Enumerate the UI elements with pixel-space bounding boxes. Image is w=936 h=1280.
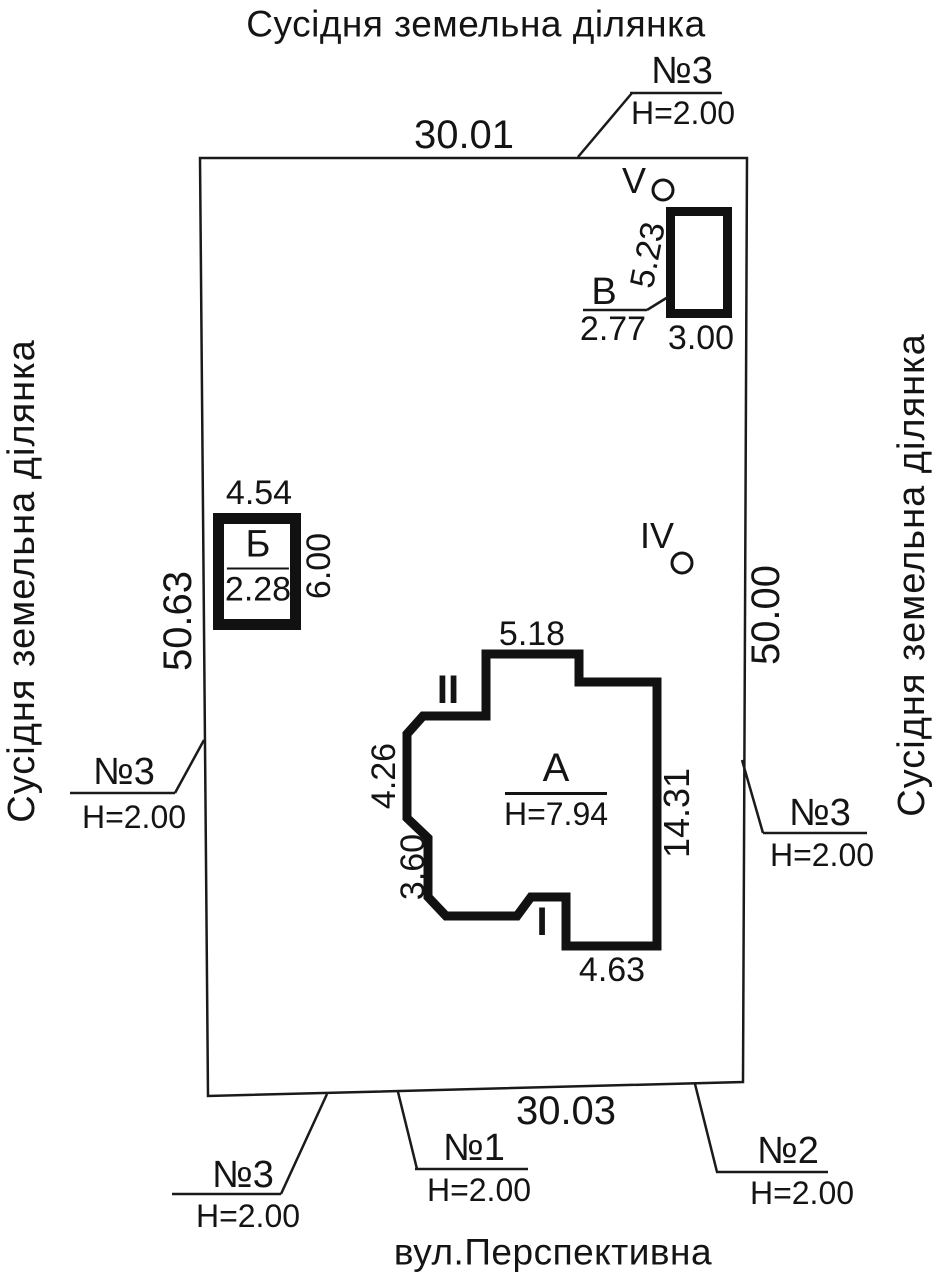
fence-no2-leader (695, 1084, 717, 1172)
fence-no2-height: H=2.00 (750, 1177, 854, 1209)
title-top: Сусідня земельна ділянка (246, 6, 705, 43)
fence-no1-height: H=2.00 (427, 1174, 531, 1206)
plot-dim-left: 50.63 (158, 571, 198, 671)
building-b-value: 2.28 (225, 570, 291, 607)
building-a-height: H=7.94 (504, 795, 608, 830)
fence-right-label: №3 (789, 794, 851, 832)
plan-drawing (0, 0, 936, 1280)
building-b-dim-width: 4.54 (226, 476, 292, 510)
fence-top-height: H=2.00 (631, 97, 735, 129)
building-a-label-group: А H=7.94 (504, 748, 608, 830)
title-street: вул.Перспективна (394, 1234, 712, 1271)
fence-top-leader (578, 93, 632, 157)
building-a-mark-ii: II (437, 670, 459, 710)
plot-dim-top: 30.01 (414, 115, 514, 155)
fence-no1-leader (398, 1092, 417, 1169)
building-a-dim-right: 14.31 (659, 768, 695, 858)
fence-bottom-left-height: H=2.00 (196, 1200, 300, 1232)
point-v-label: V (622, 163, 646, 199)
fence-no1-label: №1 (443, 1129, 505, 1167)
building-v-leader (647, 297, 668, 310)
plot-dim-bottom: 30.03 (516, 1091, 616, 1131)
building-v-label: В (591, 273, 616, 311)
building-v-outline (671, 212, 728, 314)
building-a-dim-bottom: 4.63 (579, 953, 645, 987)
plot-dim-right: 50.00 (746, 565, 786, 665)
fence-top-label: №3 (651, 52, 713, 90)
fence-left-leader (175, 740, 204, 793)
building-v-dim-width: 3.00 (668, 321, 734, 355)
fence-bottom-left-leader (281, 1094, 327, 1194)
building-a-mark-i: I (536, 902, 547, 942)
site-plan: Сусідня земельна ділянка Сусідня земельн… (0, 0, 936, 1280)
point-iv-label: IV (640, 518, 674, 554)
building-b-label: Б (227, 526, 289, 570)
point-v-circle (653, 180, 673, 200)
fence-bottom-left-label: №3 (212, 1156, 274, 1194)
fence-right-height: H=2.00 (770, 839, 874, 871)
building-b-label-group: Б 2.28 (225, 526, 291, 607)
building-a-dim-top: 5.18 (499, 617, 565, 651)
building-b-dim-height: 6.00 (302, 533, 336, 599)
title-left: Сусідня земельна ділянка (3, 339, 41, 822)
fence-left-height: H=2.00 (82, 801, 186, 833)
building-a-dim-left-lower: 3.60 (396, 834, 430, 900)
fence-no2-label: №2 (757, 1132, 819, 1170)
title-right: Сусідня земельна ділянка (893, 333, 931, 816)
building-a-dim-left-upper: 4.26 (367, 743, 401, 809)
building-v-value: 2.77 (580, 312, 646, 346)
point-iv-circle (672, 553, 692, 573)
fence-left-label: №3 (93, 753, 155, 791)
building-a-label: А (505, 748, 607, 795)
